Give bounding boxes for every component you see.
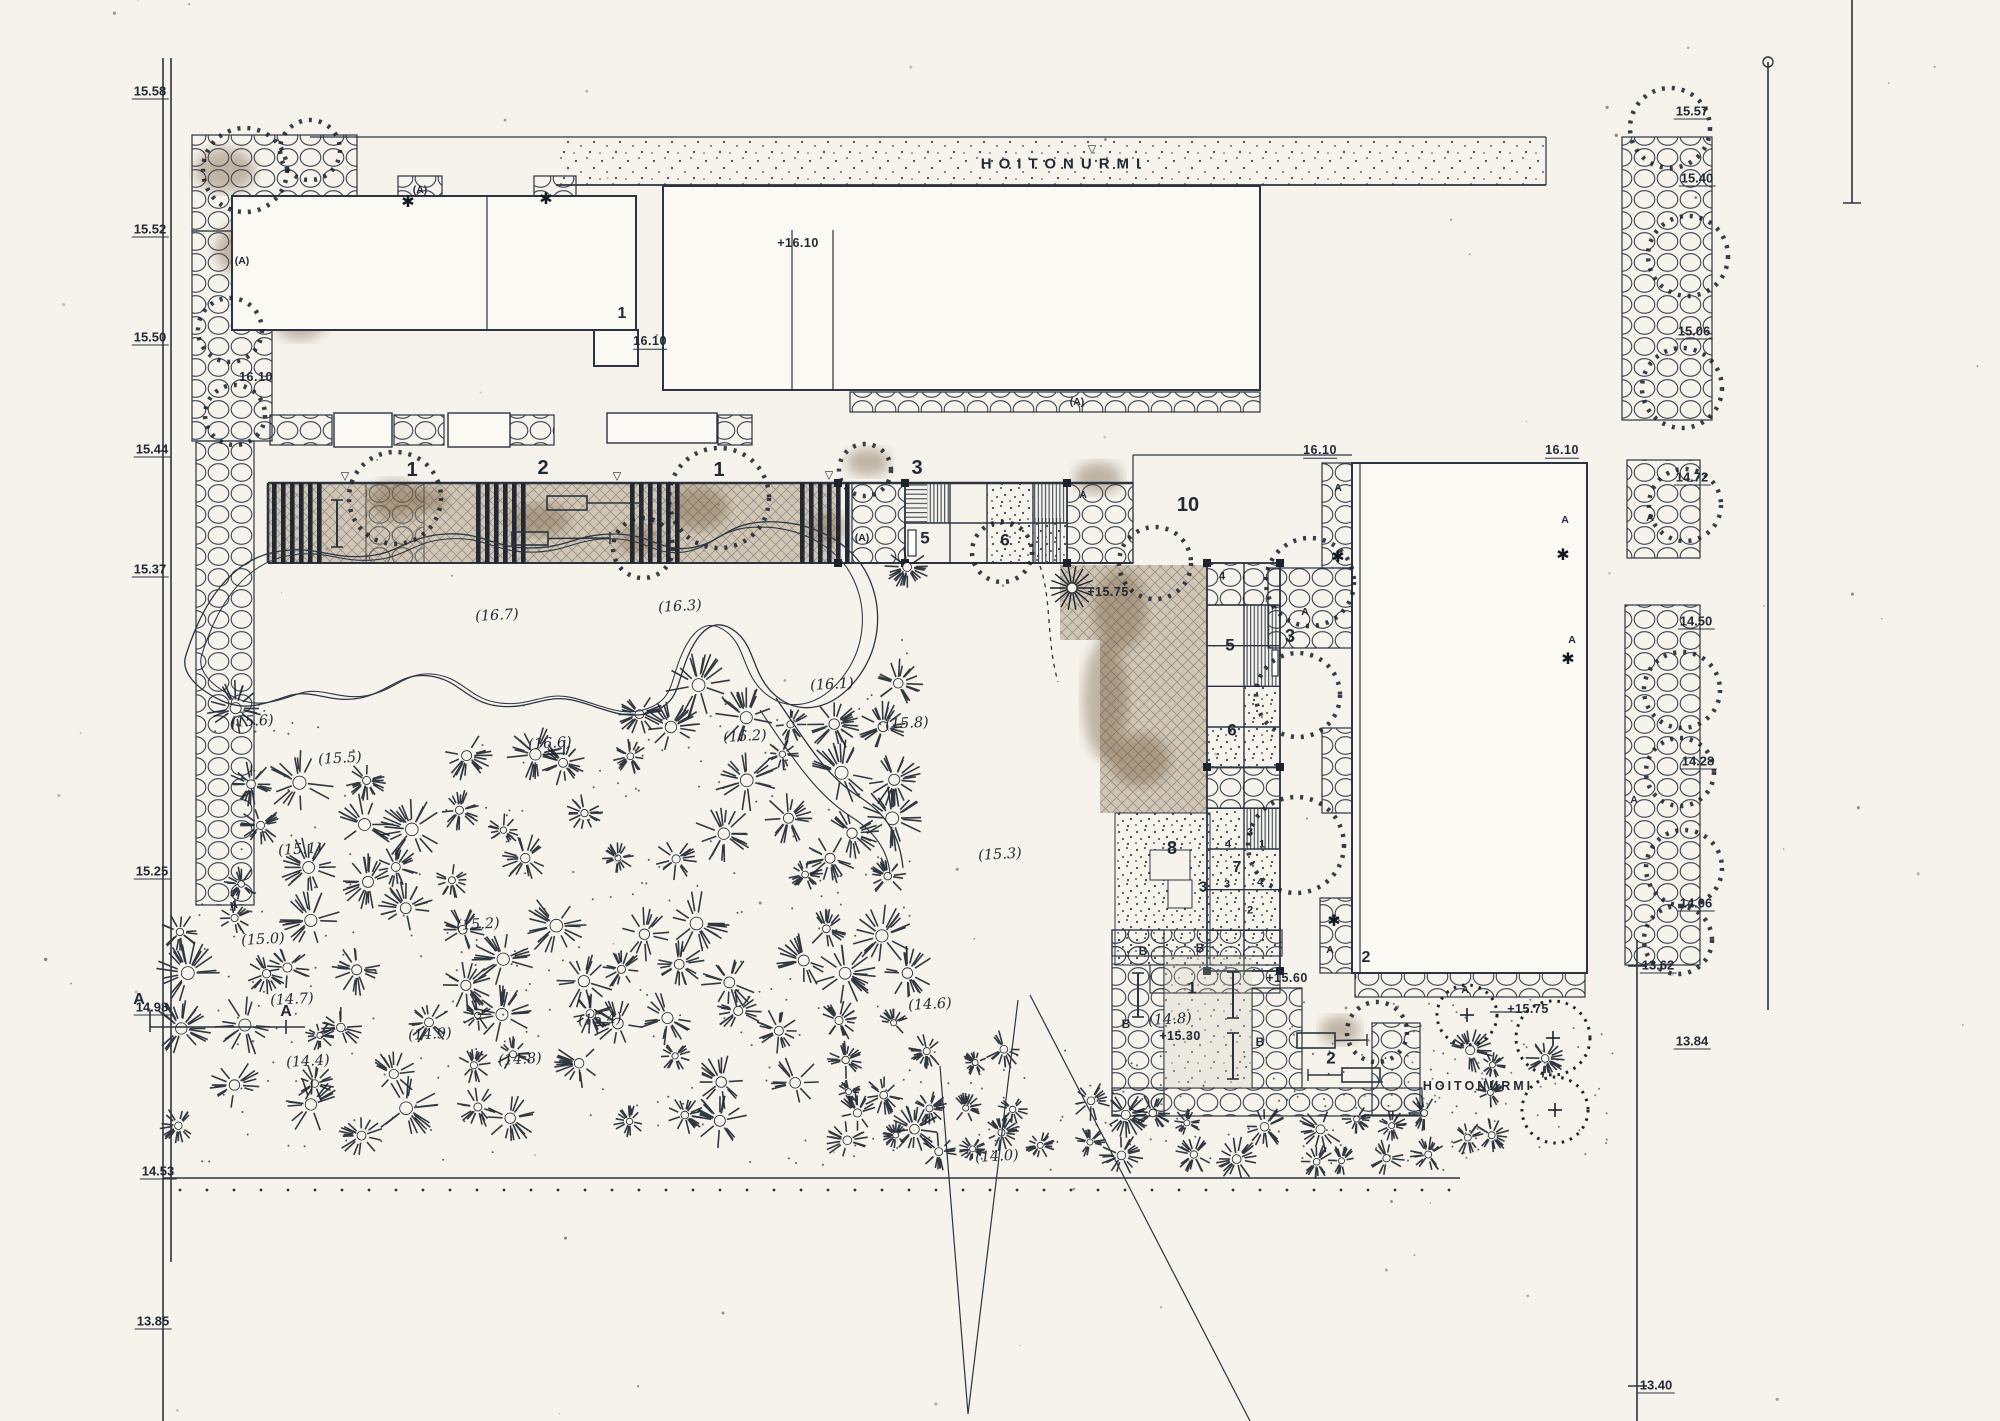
planting-marker: A [1461,985,1469,996]
elevation-label: 15.06 [1676,325,1713,340]
elevation-label: 15.57 [1674,105,1711,120]
conifer-icon: ✱ [401,195,414,211]
elevation-label: 15.58 [132,85,169,100]
elevation-label: 14.06 [1678,897,1715,912]
area-number: 3 [1199,880,1207,895]
cell-number: 3 [1247,828,1253,839]
elevation-label: 15.37 [132,563,169,578]
spot-elevation: (14.4) [286,1054,330,1071]
spot-elevation: (15.1) [278,842,322,859]
elevation-label: 13.84 [1674,1035,1711,1050]
planting-marker: (A) [235,256,250,267]
b-marker: B [1122,1018,1131,1030]
area-number: 1 [713,460,724,480]
spot-elevation: (15.6) [230,714,274,731]
spot-elevation: (14.0) [975,1149,1019,1166]
level-mark: +15.30 [1159,1030,1201,1043]
area-number: 5 [920,530,929,547]
lawn-label-top: HOITONURMI [981,157,1147,172]
elevation-label: 13.40 [1638,1379,1675,1394]
area-number: 2 [1326,1050,1335,1067]
area-number: 3 [1285,627,1295,645]
area-number: 6 [1000,532,1009,549]
conifer-icon: ✱ [539,192,552,208]
spot-elevation: (15.2) [456,917,500,934]
spot-elevation: (14.9) [408,1027,452,1044]
spot-elevation: (16.3) [658,599,702,616]
area-number: 7 [1233,860,1242,876]
elevation-label: 13.62 [1640,959,1677,974]
cell-number: 3 [1224,880,1230,891]
cell-number: 4 [1225,840,1231,851]
level-mark: +15.75 [1087,586,1129,599]
conifer-icon: ✱ [1327,914,1340,930]
annotation-labels: 15.5815.5215.5015.4415.3715.2514.9814.53… [0,0,2000,1421]
level-mark: 16.10 [633,335,667,350]
cell-number: 4 [1219,572,1225,583]
area-number: 8 [1167,839,1177,857]
elevation-label: 15.52 [132,223,169,238]
conifer-icon: ✱ [1556,548,1569,564]
b-marker: B [1196,942,1205,954]
planting-marker: (A) [855,533,870,544]
area-number: 2 [537,458,548,478]
planting-marker: (A) [413,185,428,196]
spot-height-triangle-icon: ▽ [341,472,349,483]
section-marker: A [280,1004,292,1020]
conifer-icon: ✱ [1561,652,1574,668]
spot-elevation: (16.7) [475,608,519,625]
spot-elevation: (14.6) [908,997,952,1014]
area-number: 1 [1187,980,1196,997]
lawn-label-bottom: HOITONURMI [1423,1080,1533,1093]
planting-marker: A [1646,513,1654,524]
elevation-label: 15.25 [134,865,171,880]
b-marker: B [1139,945,1148,957]
level-mark: +16.10 [777,237,819,250]
elevation-label: 15.50 [132,331,169,346]
planting-marker: A [1301,607,1309,618]
planting-marker: A [1568,635,1576,646]
spot-elevation: (15.8) [885,716,929,733]
planting-marker: A [1630,795,1638,806]
spot-height-triangle-icon: ▽ [1088,145,1096,156]
spot-elevation: (16.2) [723,729,767,746]
spot-height-triangle-icon: ▽ [613,472,621,483]
planting-marker: A [1079,490,1087,501]
b-marker: B [1256,1036,1265,1048]
cell-number: 4 [1257,878,1263,889]
elevation-label: 14.72 [1674,471,1711,486]
spot-height-triangle-icon: ▽ [825,471,833,482]
area-number: 10 [1177,495,1199,515]
level-mark: 16.10 [239,371,273,384]
spot-elevation: (16.1) [810,677,854,694]
planting-marker: A [1334,483,1342,494]
area-number: 1 [406,460,417,480]
planting-marker: A [1561,515,1569,526]
section-marker: A [133,992,145,1008]
cell-number: 1 [1259,840,1265,851]
elevation-label: 15.44 [134,443,171,458]
elevation-label: 14.28 [1680,755,1717,770]
level-mark: +15.75 [1507,1003,1549,1016]
cell-number: 2 [1247,906,1253,917]
spot-elevation: (15.3) [978,847,1022,864]
level-mark: 16.10 [1545,444,1579,459]
area-number: 1 [618,306,627,322]
area-number: 6 [1227,722,1236,739]
level-mark: 16.10 [1303,444,1337,459]
area-number: 2 [1362,950,1371,966]
area-number: 3 [911,458,922,478]
conifer-icon: ✱ [1331,550,1344,566]
area-number: 5 [1225,637,1234,654]
spot-elevation: (14.8) [498,1052,542,1069]
elevation-label: 14.53 [140,1165,177,1180]
planting-marker: A [230,900,238,911]
elevation-label: 14.50 [1678,615,1715,630]
spot-elevation: (15.5) [318,751,362,768]
elevation-label: 13.85 [135,1315,172,1330]
spot-elevation: (15.0) [241,932,285,949]
level-mark: +15.60 [1266,972,1308,985]
planting-marker: (A) [1070,397,1085,408]
elevation-label: 15.40 [1679,172,1716,187]
planting-marker: A [1326,945,1334,956]
spot-elevation: (15.4) [578,1012,622,1029]
spot-elevation: (14.8) [1148,1012,1192,1029]
spot-elevation: (16.6) [528,736,572,753]
site-plan: 15.5815.5215.5015.4415.3715.2514.9814.53… [0,0,2000,1421]
